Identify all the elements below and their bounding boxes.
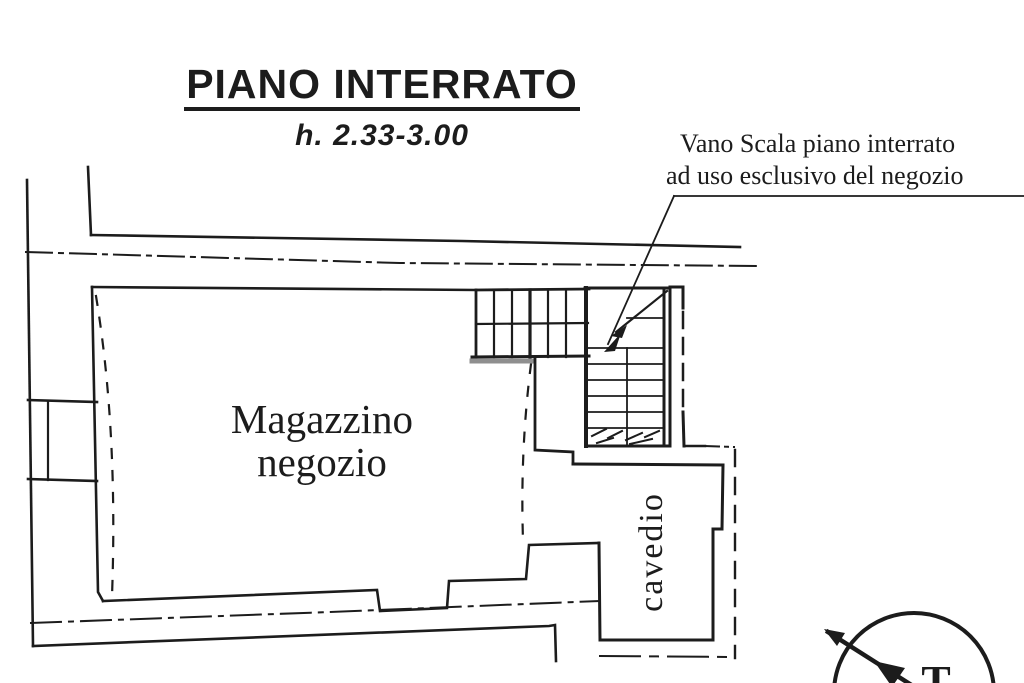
dashed-vault-line-right (522, 364, 531, 540)
north-letter: T (921, 657, 950, 683)
annotation-leader-line (604, 196, 1024, 352)
height-note: h. 2.33-3.00 (132, 119, 632, 153)
room-label-cavedio: cavedio (632, 472, 672, 632)
stair-direction-arrow (611, 291, 667, 338)
floor-plan-page: T PIANO INTERRATO h. 2.33-3.00 Vano Scal… (0, 0, 1024, 683)
stair-treads (587, 318, 664, 446)
stair-flight-upper (472, 289, 589, 361)
stair-landing-walls (535, 359, 573, 464)
page-title: PIANO INTERRATO (184, 64, 580, 111)
stair-hatching (592, 429, 659, 444)
dashed-vault-line-left (96, 296, 113, 596)
stair-annotation-line2: ad uso esclusivo del negozio (666, 160, 1022, 192)
north-arrow-icon: T (824, 613, 994, 683)
closet-walls (28, 400, 97, 481)
stairwell-right-wall (670, 287, 735, 658)
header: PIANO INTERRATO h. 2.33-3.00 (132, 64, 632, 153)
magazzino-label-line2: negozio (162, 441, 482, 484)
stair-annotation-line1: Vano Scala piano interrato (680, 128, 1022, 160)
stair-annotation: Vano Scala piano interrato ad uso esclus… (666, 128, 1022, 192)
magazzino-label-line1: Magazzino (162, 398, 482, 441)
stairwell (585, 288, 670, 446)
room-label-magazzino: Magazzino negozio (162, 398, 482, 484)
